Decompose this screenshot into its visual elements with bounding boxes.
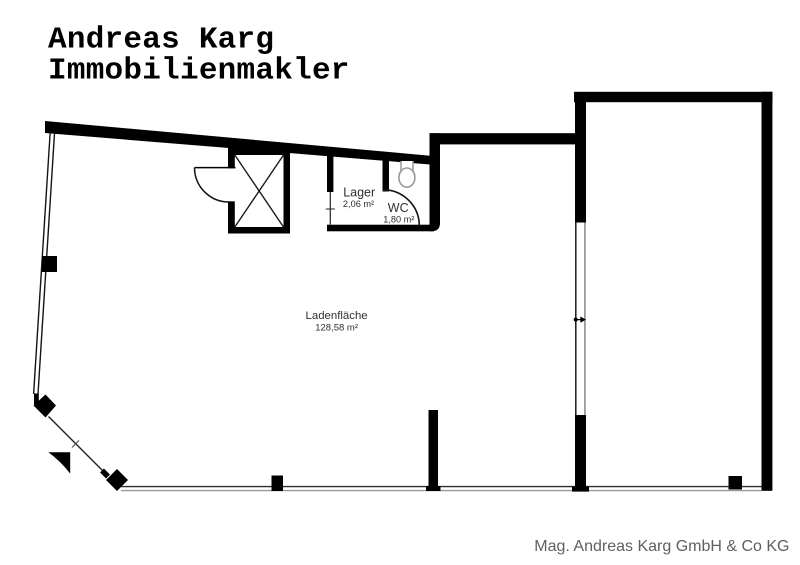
- svg-text:Lager: Lager: [343, 186, 375, 200]
- svg-text:Immobilienmakler: Immobilienmakler: [48, 54, 350, 89]
- svg-text:128,58 m²: 128,58 m²: [315, 322, 358, 333]
- svg-text:WC: WC: [388, 201, 409, 215]
- svg-text:Mag. Andreas Karg GmbH & Co KG: Mag. Andreas Karg GmbH & Co KG: [534, 538, 789, 555]
- svg-text:1,80 m²: 1,80 m²: [383, 214, 414, 224]
- svg-text:2,06 m²: 2,06 m²: [343, 199, 374, 209]
- svg-text:Ladenfläche: Ladenfläche: [306, 310, 368, 322]
- svg-text:Andreas Karg: Andreas Karg: [48, 22, 274, 57]
